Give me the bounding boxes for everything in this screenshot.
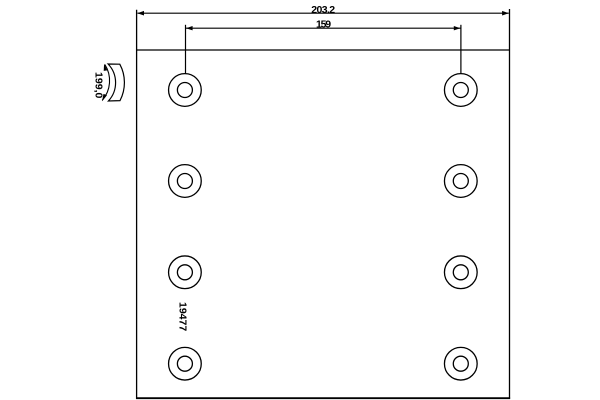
svg-text:19477: 19477 [177, 302, 189, 331]
svg-text:199,0: 199,0 [92, 72, 104, 98]
svg-text:159: 159 [316, 19, 331, 31]
svg-text:203.2: 203.2 [311, 4, 335, 16]
